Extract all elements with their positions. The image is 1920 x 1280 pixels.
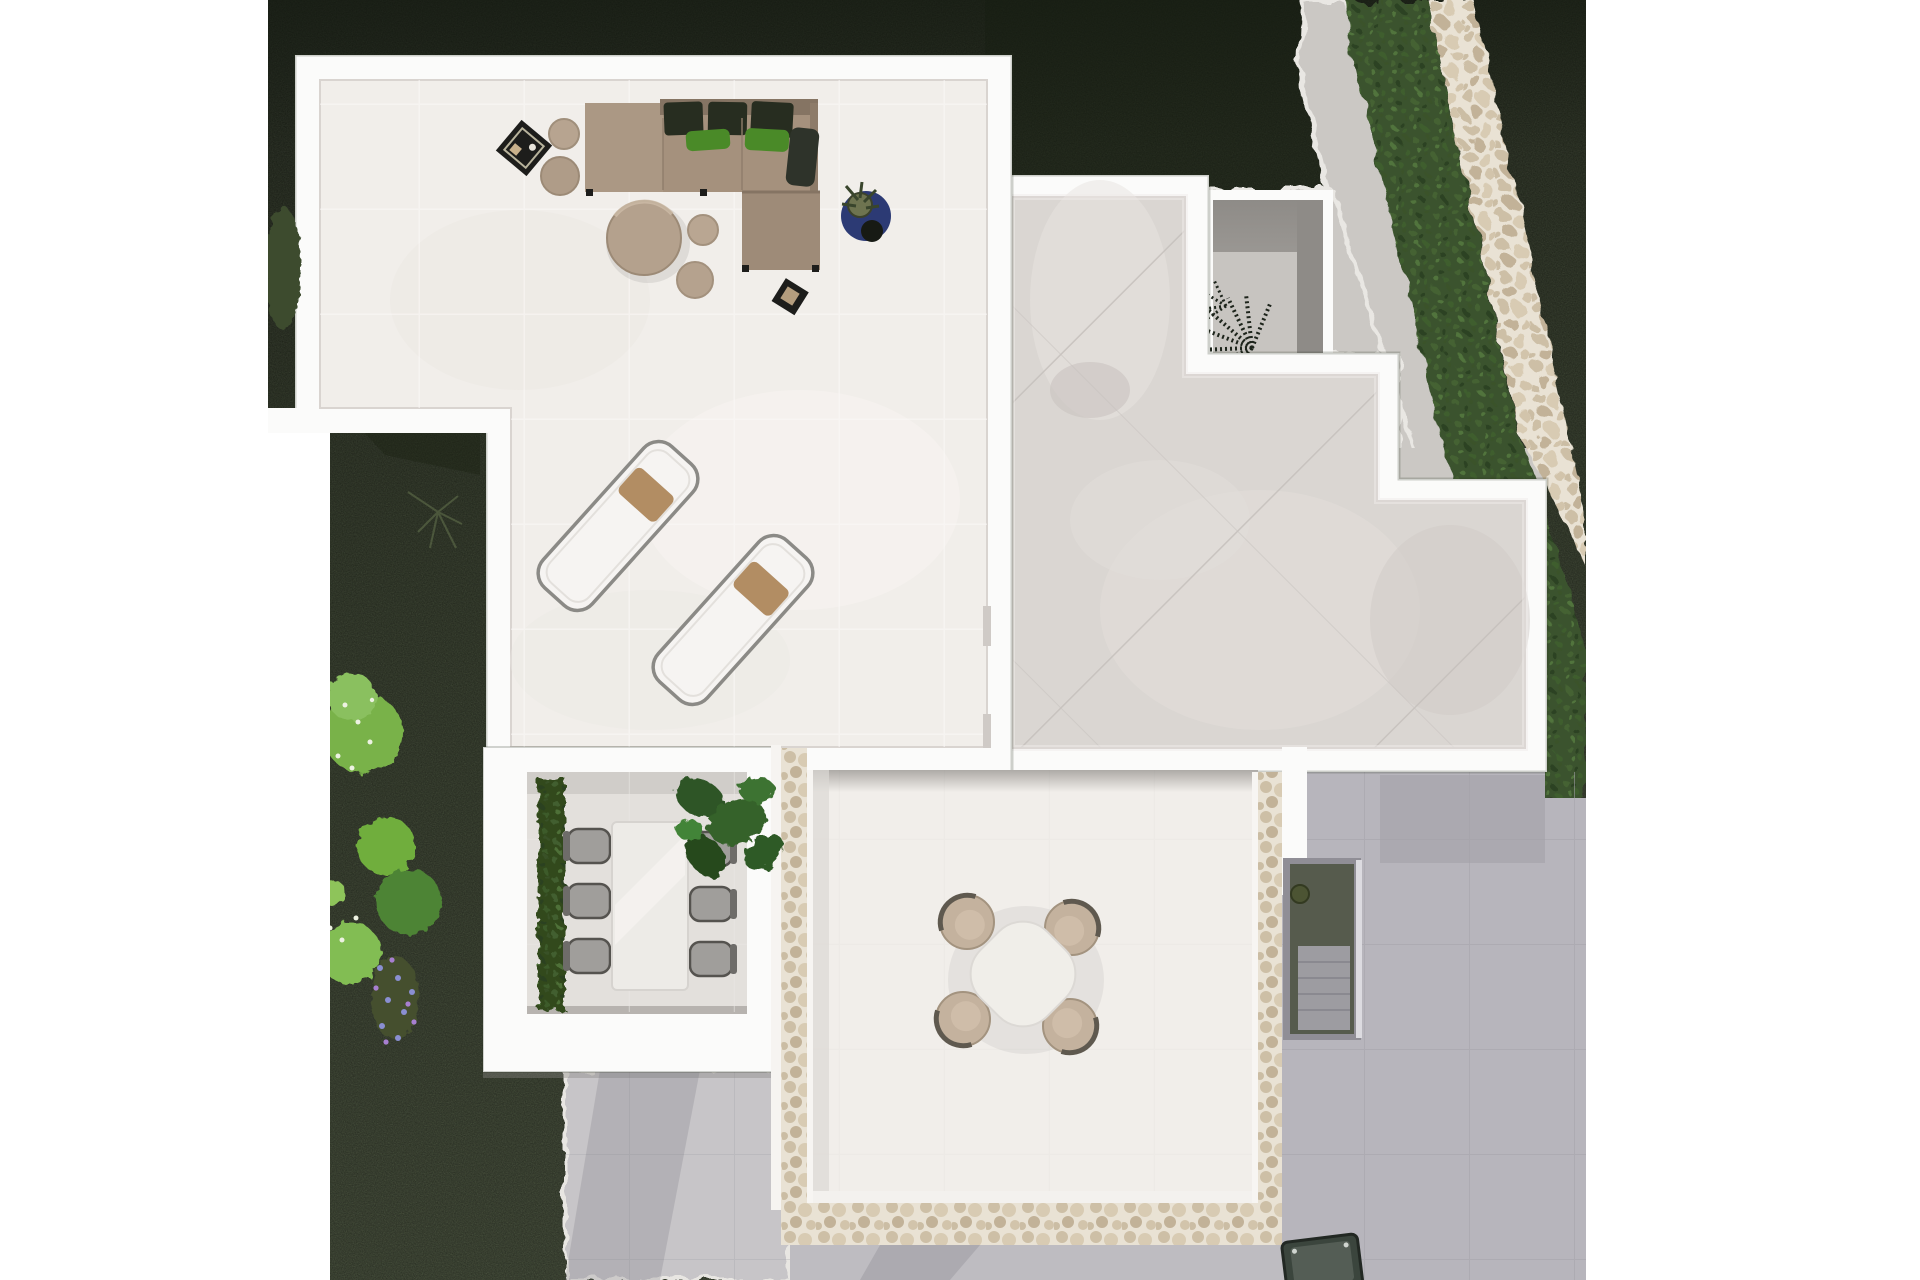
pouf-large bbox=[677, 262, 713, 298]
bbq-grill bbox=[1281, 1234, 1363, 1280]
stone-west-trim bbox=[771, 745, 781, 1210]
stair-plant bbox=[1291, 885, 1309, 903]
door-jamb-mark-1 bbox=[983, 606, 991, 646]
side-table-small bbox=[549, 119, 579, 149]
courtyard-east-wall-face bbox=[1297, 200, 1323, 361]
stone-inner-trim-east bbox=[1252, 772, 1258, 1203]
margin-left-lower bbox=[268, 433, 330, 1280]
sofa-dark-side-pillow bbox=[785, 127, 820, 188]
stone-inner-trim-west bbox=[807, 770, 813, 1203]
sunken-stair bbox=[1283, 858, 1362, 1040]
villa-aerial-render bbox=[0, 0, 1920, 1280]
side-table-large bbox=[541, 157, 579, 195]
garden-wall-stub bbox=[268, 408, 493, 433]
margin-left bbox=[0, 0, 268, 1280]
grass-shadow-topright bbox=[985, 0, 1350, 200]
stone-band-south bbox=[781, 1203, 1282, 1245]
margin-right bbox=[1586, 0, 1920, 1280]
patio-west-shadow bbox=[813, 770, 829, 1203]
dining-chairs-left bbox=[563, 829, 610, 973]
stone-band-west bbox=[781, 748, 807, 1203]
stone-band-east bbox=[1258, 772, 1282, 1245]
stair-treads bbox=[1298, 946, 1350, 1030]
sofa-ottoman-module bbox=[585, 103, 663, 192]
door-jamb-mark-2 bbox=[983, 714, 991, 748]
sofa-chaise-module bbox=[742, 192, 820, 270]
round-dining-set bbox=[925, 884, 1110, 1064]
planter-strip bbox=[538, 778, 565, 1010]
render-canvas bbox=[0, 0, 1920, 1280]
pouf-small bbox=[688, 215, 718, 245]
patio-north-shadow bbox=[813, 770, 1258, 792]
courtyard bbox=[1196, 190, 1333, 371]
patio-south-trim bbox=[810, 1191, 1258, 1203]
